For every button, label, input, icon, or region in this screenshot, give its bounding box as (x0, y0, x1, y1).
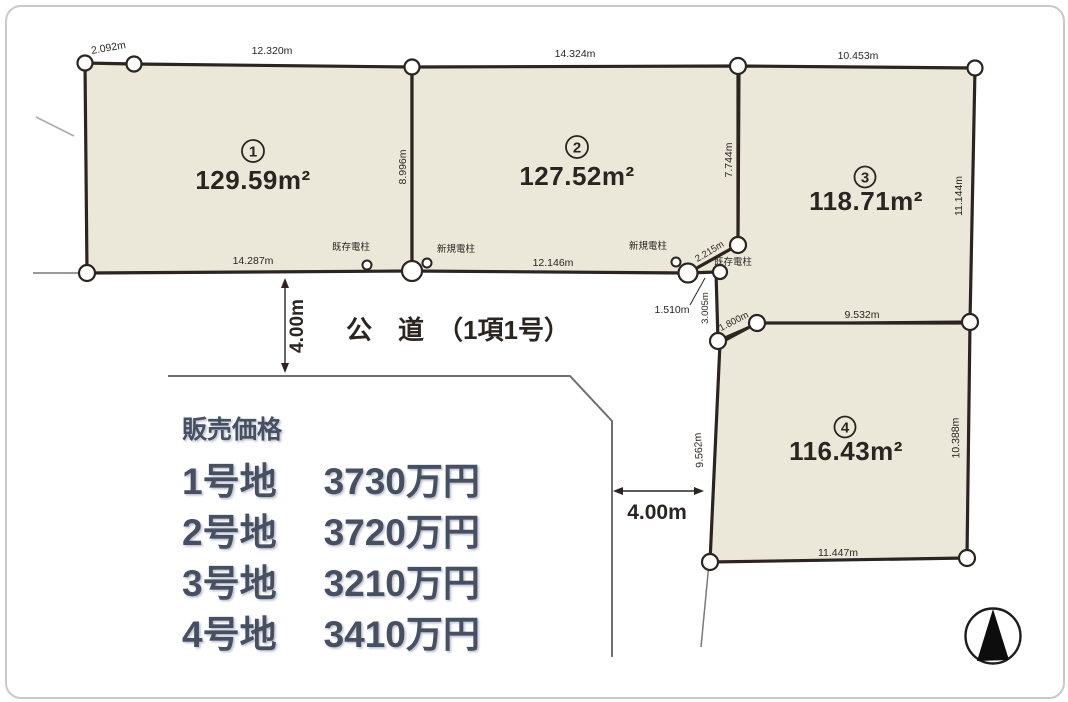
arrow-down-icon (281, 363, 289, 373)
dim-plot3-top: 10.453m (838, 50, 879, 62)
pole-label-new-2: 新規電柱 (629, 240, 668, 252)
dim-plot4-right: 10.388m (950, 417, 963, 458)
price-row-4: 4号地3410万円 (182, 609, 480, 660)
dim-junction-short: 1.510m (654, 304, 689, 316)
arrow-up-icon (281, 278, 289, 288)
dim-plot1-corner: 2.092m (90, 39, 127, 57)
plot3-area: 118.71m² (809, 186, 923, 216)
dim-plot4-left: 9.562m (692, 432, 706, 468)
plot2-number: 2 (573, 140, 581, 157)
plot4-number: 4 (841, 420, 850, 437)
pole-label-existing-1: 既存電柱 (332, 241, 371, 253)
vertex-marker (679, 264, 698, 283)
plot3-number: 3 (861, 170, 869, 187)
vertex-marker (79, 265, 95, 281)
vertex-marker (402, 261, 422, 281)
plot2-area: 127.52m² (519, 161, 634, 191)
dim-plot2-3-side: 7.744m (723, 142, 735, 177)
vertex-marker (962, 314, 978, 330)
plot4-area: 116.43m² (789, 436, 903, 466)
boundary-line-below-plot4 (701, 563, 709, 647)
lot-price: 3730万円 (324, 461, 480, 502)
vertex-marker (730, 237, 746, 253)
price-list: 販売価格 1号地3730万円 2号地3720万円 3号地3210万円 4号地34… (182, 410, 480, 660)
price-row-3: 3号地3210万円 (182, 558, 480, 609)
land-plot-diagram: 2.092m 12.320m 14.287m 8.996m 14.324m 12… (0, 0, 1068, 702)
lot-price: 3720万円 (324, 512, 480, 553)
vertex-marker (713, 265, 727, 279)
dim-plot3-bottom: 9.532m (844, 309, 879, 321)
road-width-left-label: 4.00m (287, 299, 308, 353)
price-row-1: 1号地3730万円 (182, 456, 480, 507)
lot-price: 3410万円 (324, 614, 480, 655)
pole-label-new-1: 新規電柱 (437, 243, 476, 255)
arrow-right-icon (694, 487, 704, 495)
lot-name: 3号地 (182, 563, 277, 604)
vertex-marker (959, 550, 975, 566)
price-row-2: 2号地3720万円 (182, 507, 480, 558)
dim-plot1-top: 12.320m (252, 45, 293, 57)
utility-pole-icon (423, 259, 432, 268)
dim-plot3-right: 11.144m (953, 176, 965, 216)
utility-pole-icon (363, 261, 372, 270)
lot-price: 3210万円 (324, 563, 480, 604)
vertex-marker (78, 56, 93, 71)
vertex-marker (968, 61, 983, 76)
plot1-area: 129.59m² (195, 165, 310, 195)
dim-plot4-bottom: 11.447m (818, 547, 858, 559)
vertex-marker (730, 58, 746, 74)
vertex-marker (127, 57, 142, 72)
plot-map-canvas: 2.092m 12.320m 14.287m 8.996m 14.324m 12… (0, 0, 1068, 702)
vertex-marker (702, 554, 718, 570)
lot-name: 4号地 (182, 614, 277, 655)
dim-plot2-bottom: 12.146m (533, 257, 574, 269)
vertex-marker (749, 315, 765, 331)
lot-name: 2号地 (182, 512, 277, 553)
road-name-label: 公 道 （1項1号） (346, 315, 570, 345)
neighbor-boundary-line-topleft (36, 117, 74, 136)
plot1-number: 1 (249, 144, 257, 161)
price-list-heading: 販売価格 (182, 410, 480, 446)
arrow-left-icon (613, 487, 623, 495)
vertex-marker (405, 60, 420, 75)
lot-name: 1号地 (182, 461, 277, 502)
dim-plot2-top: 14.324m (555, 48, 596, 60)
road-width-bottom-label: 4.00m (627, 501, 687, 524)
vertex-marker (710, 333, 726, 349)
dim-junction-vertical: 3.005m (700, 292, 711, 324)
dim-plot1-bottom: 14.287m (233, 255, 274, 267)
utility-pole-icon (672, 258, 681, 267)
north-arrow-icon (966, 609, 1021, 664)
dim-plot1-2-side: 8.996m (397, 149, 409, 184)
